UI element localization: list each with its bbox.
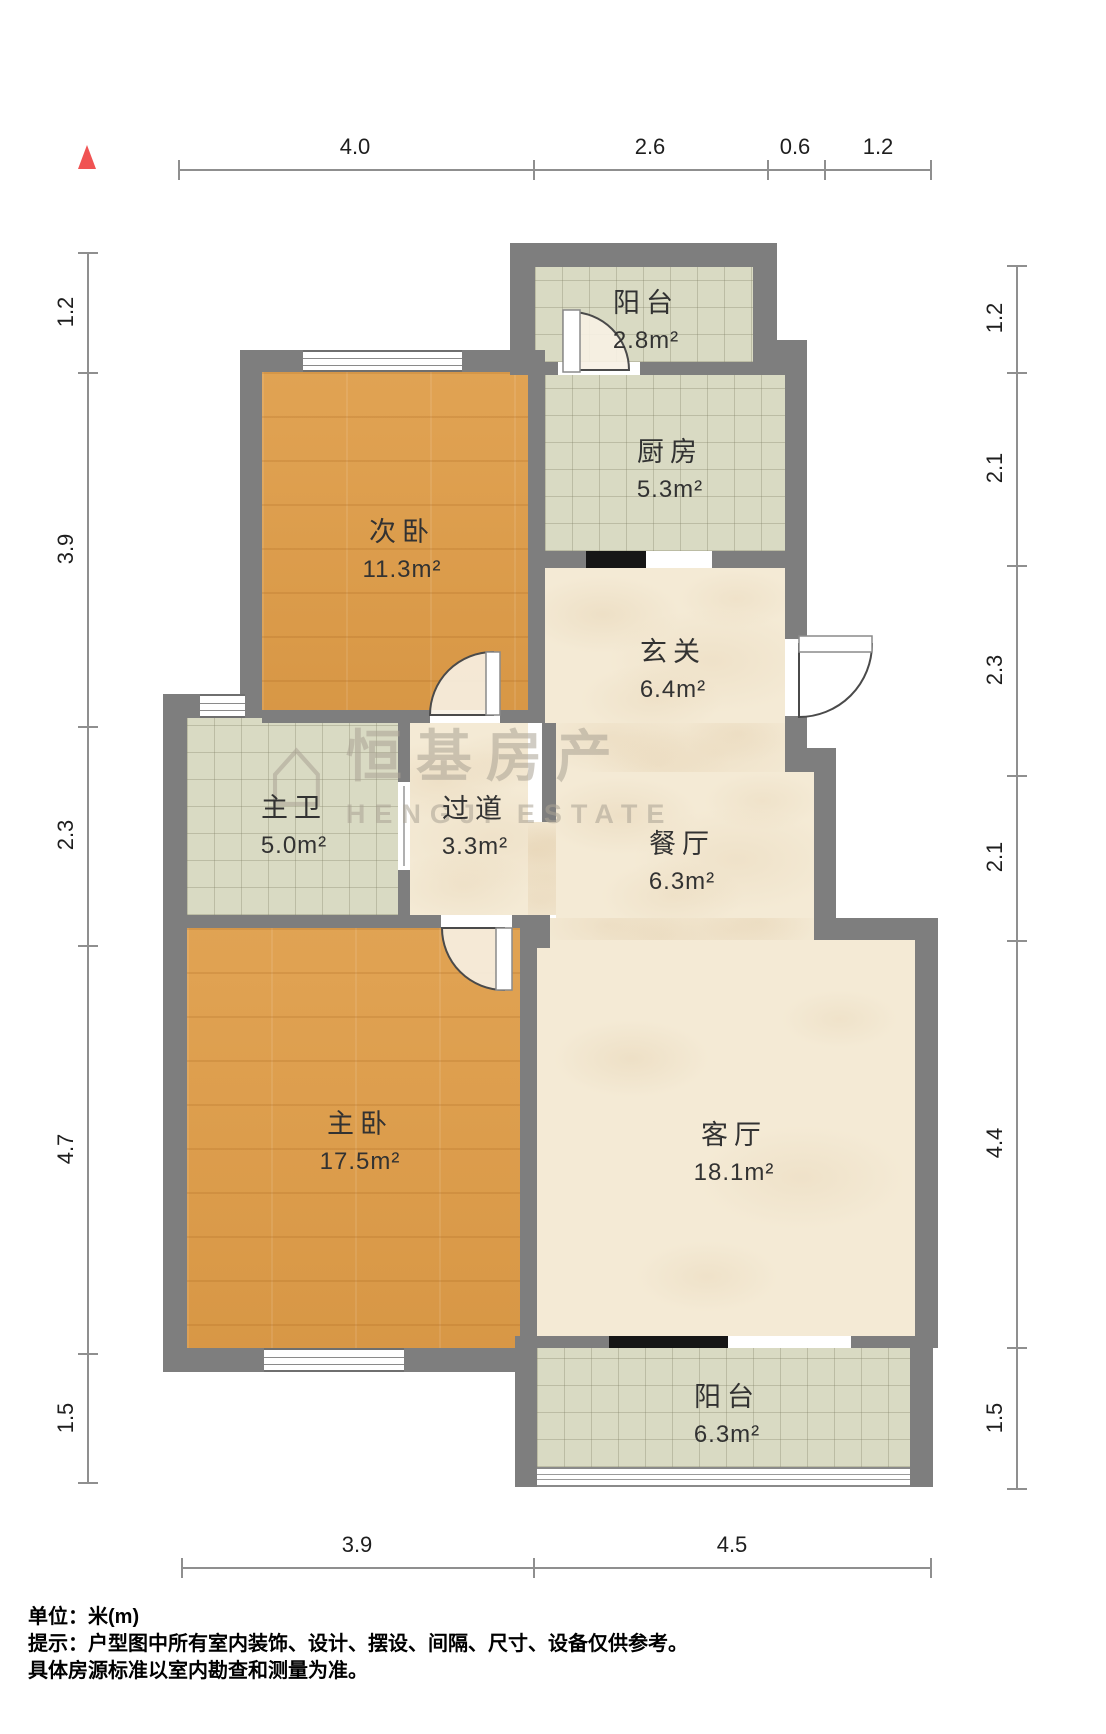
room-label-balcony-top: 阳台 2.8m²: [613, 281, 679, 355]
door-layer: [0, 0, 1106, 1734]
dim-bottom-1: 3.9: [342, 1532, 373, 1558]
room-area: 3.3m²: [442, 833, 508, 861]
footer-notes: 单位：米(m) 提示：户型图中所有室内装饰、设计、摆设、间隔、尺寸、设备仅供参考…: [28, 1604, 688, 1685]
dim-left-3: 2.3: [53, 820, 79, 851]
dim-right-3: 2.3: [982, 655, 1008, 686]
room-area: 18.1m²: [694, 1159, 775, 1187]
entry-door-arc: [799, 644, 872, 717]
dim-right-1: 1.2: [982, 303, 1008, 334]
dim-right-6: 1.5: [982, 1403, 1008, 1434]
bedroom-master-door-leaf: [496, 928, 512, 990]
dim-left-2: 3.9: [53, 534, 79, 565]
dimension-line-bottom: [181, 1567, 932, 1569]
room-area: 11.3m²: [363, 556, 442, 584]
dim-left-5: 1.5: [53, 1403, 79, 1434]
room-area: 5.3m²: [637, 476, 703, 504]
room-label-balcony-bottom: 阳台 6.3m²: [694, 1375, 760, 1449]
room-name: 阳台: [694, 1375, 760, 1414]
dim-right-5: 4.4: [982, 1128, 1008, 1159]
room-name: 主卧: [320, 1102, 401, 1141]
room-label-hallway: 过道 3.3m²: [442, 787, 508, 861]
footer-hint-line2: 具体房源标准以室内勘查和测量为准。: [28, 1658, 688, 1685]
dim-top-2: 2.6: [635, 134, 666, 160]
room-area: 6.3m²: [649, 868, 715, 896]
entry-door-leaf: [799, 636, 872, 652]
floor-plan-canvas: ⌂ 恒基房产 HENGJI ESTATE 阳台 2.8m² 厨房 5.3m² 次…: [0, 0, 1106, 1734]
dimension-line-right: [1016, 265, 1018, 1490]
footer-unit-line: 单位：米(m): [28, 1604, 688, 1631]
room-label-bedroom-second: 次卧 11.3m²: [363, 510, 442, 584]
room-area: 5.0m²: [261, 832, 327, 860]
room-label-bathroom: 主卫 5.0m²: [261, 786, 327, 860]
footer-hint-line: 提示：户型图中所有室内装饰、设计、摆设、间隔、尺寸、设备仅供参考。: [28, 1631, 688, 1658]
room-name: 过道: [442, 787, 508, 826]
room-name: 阳台: [613, 281, 679, 320]
dim-top-4: 1.2: [863, 134, 894, 160]
dim-right-2: 2.1: [982, 453, 1008, 484]
bedroom-second-door-leaf: [486, 652, 500, 715]
dim-bottom-2: 4.5: [717, 1532, 748, 1558]
dim-right-4: 2.1: [982, 842, 1008, 873]
room-name: 客厅: [694, 1113, 775, 1152]
dim-left-4: 4.7: [53, 1134, 79, 1165]
dimension-line-top: [178, 169, 932, 171]
room-label-bedroom-master: 主卧 17.5m²: [320, 1102, 401, 1176]
dim-top-3: 0.6: [780, 134, 811, 160]
room-label-living: 客厅 18.1m²: [694, 1113, 775, 1187]
room-area: 2.8m²: [613, 327, 679, 355]
balcony-top-door-leaf: [563, 310, 580, 372]
dim-top-1: 4.0: [340, 134, 371, 160]
dim-left-1: 1.2: [53, 297, 79, 328]
bedroom-second-door-arc: [430, 652, 493, 715]
room-name: 厨房: [637, 430, 703, 469]
room-name: 主卫: [261, 786, 327, 825]
room-area: 6.3m²: [694, 1421, 760, 1449]
bedroom-master-door-arc: [442, 928, 504, 990]
room-area: 6.4m²: [640, 676, 706, 704]
room-name: 玄关: [640, 630, 706, 669]
room-name: 次卧: [363, 510, 442, 549]
room-label-kitchen: 厨房 5.3m²: [637, 430, 703, 504]
dimension-line-left: [87, 252, 89, 1484]
room-name: 餐厅: [649, 822, 715, 861]
room-area: 17.5m²: [320, 1148, 401, 1176]
room-label-entry: 玄关 6.4m²: [640, 630, 706, 704]
room-label-dining: 餐厅 6.3m²: [649, 822, 715, 896]
